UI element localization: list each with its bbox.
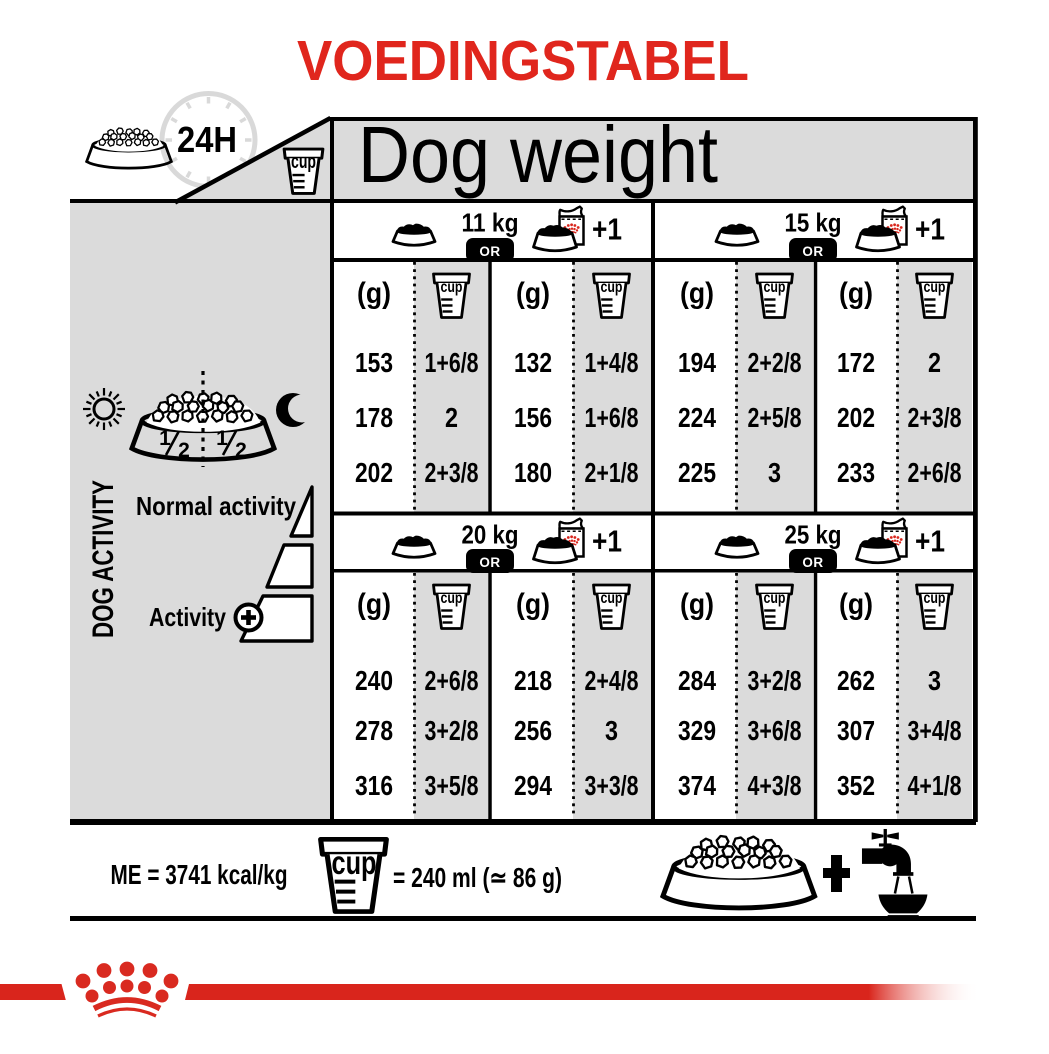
svg-text:2+3/8: 2+3/8 [425,457,479,488]
svg-text:352: 352 [837,770,875,801]
svg-text:cup: cup [441,279,463,296]
svg-text:3: 3 [928,665,941,696]
svg-text:cup: cup [924,279,946,296]
svg-text:233: 233 [837,457,875,488]
svg-text:278: 278 [355,715,393,746]
svg-text:11 kg: 11 kg [462,208,519,238]
svg-text:VOEDINGSTABEL: VOEDINGSTABEL [297,29,749,93]
svg-text:2+1/8: 2+1/8 [585,457,639,488]
svg-text:= 240 ml (≃ 86 g): = 240 ml (≃ 86 g) [393,862,562,893]
svg-text:2+6/8: 2+6/8 [908,457,962,488]
svg-text:(g): (g) [839,277,873,310]
svg-text:15 kg: 15 kg [785,208,842,238]
svg-text:OR: OR [802,244,823,259]
svg-text:374: 374 [678,770,716,801]
svg-text:202: 202 [355,457,393,488]
svg-text:25 kg: 25 kg [785,520,842,550]
svg-text:2: 2 [178,439,190,462]
svg-text:cup: cup [601,279,623,296]
svg-text:224: 224 [678,402,716,433]
svg-text:178: 178 [355,402,393,433]
svg-text:OR: OR [479,555,500,570]
svg-text:Normal activity: Normal activity [136,491,296,521]
svg-text:240: 240 [355,665,393,696]
svg-text:4+1/8: 4+1/8 [908,770,962,801]
svg-text:OR: OR [802,555,823,570]
svg-text:OR: OR [479,244,500,259]
svg-text:2+3/8: 2+3/8 [908,402,962,433]
svg-text:316: 316 [355,770,393,801]
svg-text:cup: cup [601,590,623,607]
svg-text:294: 294 [514,770,552,801]
svg-text:3+6/8: 3+6/8 [748,715,802,746]
svg-text:284: 284 [678,665,716,696]
svg-text:3+2/8: 3+2/8 [425,715,479,746]
svg-text:172: 172 [837,347,875,378]
svg-text:132: 132 [514,347,552,378]
svg-text:218: 218 [514,665,552,696]
svg-text:(g): (g) [680,588,714,621]
svg-text:153: 153 [355,347,393,378]
svg-text:(g): (g) [839,588,873,621]
svg-text:(g): (g) [680,277,714,310]
svg-text:194: 194 [678,347,716,378]
svg-text:202: 202 [837,402,875,433]
svg-text:cup: cup [764,590,786,607]
svg-text:3+3/8: 3+3/8 [585,770,639,801]
svg-text:262: 262 [837,665,875,696]
svg-text:3: 3 [768,457,781,488]
svg-text:cup: cup [332,844,377,881]
svg-text:2+6/8: 2+6/8 [425,665,479,696]
svg-text:+1: +1 [915,212,945,247]
svg-text:1+6/8: 1+6/8 [425,347,479,378]
svg-text:3+2/8: 3+2/8 [748,665,802,696]
svg-text:+1: +1 [915,524,945,559]
svg-text:4+3/8: 4+3/8 [748,770,802,801]
svg-text:307: 307 [837,715,875,746]
svg-text:225: 225 [678,457,716,488]
svg-text:2+4/8: 2+4/8 [585,665,639,696]
svg-text:3: 3 [605,715,618,746]
svg-text:+1: +1 [592,212,622,247]
svg-text:+1: +1 [592,524,622,559]
svg-text:1+6/8: 1+6/8 [585,402,639,433]
svg-text:(g): (g) [516,277,550,310]
svg-text:cup: cup [291,151,316,173]
svg-text:cup: cup [441,590,463,607]
svg-text:2: 2 [445,402,458,433]
svg-text:256: 256 [514,715,552,746]
svg-text:2+5/8: 2+5/8 [748,402,802,433]
svg-text:cup: cup [764,279,786,296]
svg-text:329: 329 [678,715,716,746]
svg-text:Activity: Activity [149,602,226,632]
svg-text:3+5/8: 3+5/8 [425,770,479,801]
svg-text:156: 156 [514,402,552,433]
svg-text:1+4/8: 1+4/8 [585,347,639,378]
svg-text:180: 180 [514,457,552,488]
svg-text:24H: 24H [177,119,237,160]
svg-text:DOG ACTIVITY: DOG ACTIVITY [87,480,120,638]
svg-text:Dog weight: Dog weight [358,110,718,199]
svg-text:2: 2 [928,347,941,378]
svg-text:2+2/8: 2+2/8 [748,347,802,378]
svg-text:(g): (g) [516,588,550,621]
svg-text:cup: cup [924,590,946,607]
svg-text:2: 2 [235,439,247,462]
svg-text:ME = 3741 kcal/kg: ME = 3741 kcal/kg [111,859,288,890]
svg-text:(g): (g) [357,588,391,621]
svg-text:20 kg: 20 kg [462,520,519,550]
svg-text:(g): (g) [357,277,391,310]
svg-text:3+4/8: 3+4/8 [908,715,962,746]
